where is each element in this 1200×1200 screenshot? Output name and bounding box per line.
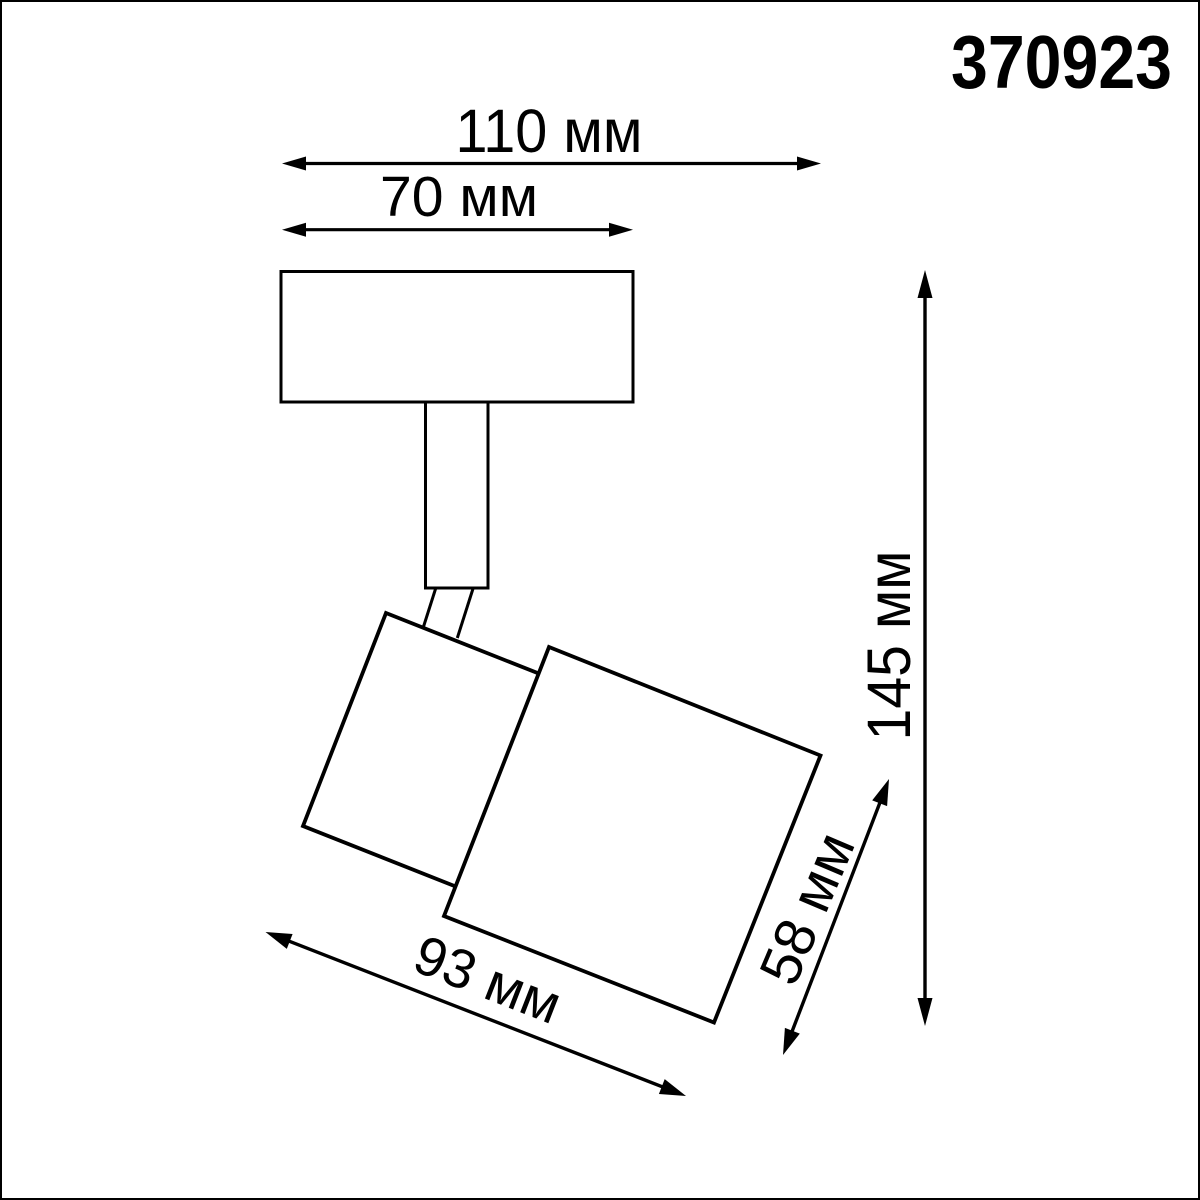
svg-text:110 мм: 110 мм xyxy=(456,97,643,165)
svg-text:370923: 370923 xyxy=(951,20,1172,104)
svg-text:70 мм: 70 мм xyxy=(380,165,538,229)
svg-text:145 мм: 145 мм xyxy=(855,551,923,741)
